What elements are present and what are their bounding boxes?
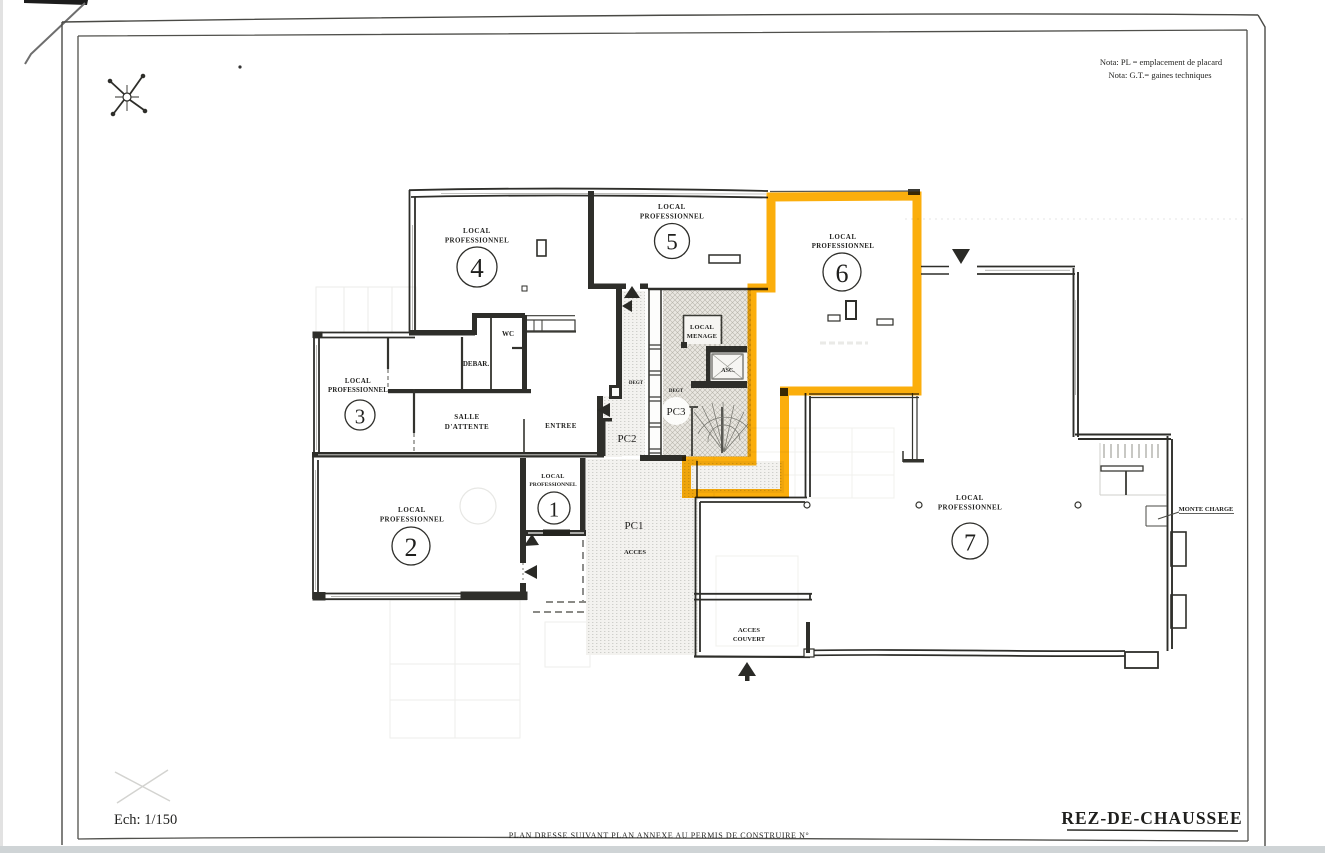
svg-text:MENAGE: MENAGE — [687, 333, 717, 340]
svg-text:PROFESSIONNEL: PROFESSIONNEL — [640, 213, 704, 221]
svg-text:3: 3 — [355, 405, 366, 429]
svg-text:PLAN DRESSE SUIVANT PLAN ANNEX: PLAN DRESSE SUIVANT PLAN ANNEXE AU PERMI… — [509, 831, 810, 840]
svg-text:7: 7 — [964, 531, 976, 557]
svg-text:D'ATTENTE: D'ATTENTE — [445, 423, 489, 431]
svg-text:ENTREE: ENTREE — [545, 422, 577, 430]
svg-text:1: 1 — [549, 498, 560, 522]
svg-text:2: 2 — [405, 533, 418, 562]
svg-text:LOCAL: LOCAL — [690, 324, 715, 331]
svg-text:LOCAL: LOCAL — [658, 203, 686, 211]
svg-text:WC: WC — [502, 330, 514, 338]
svg-text:SALLE: SALLE — [454, 413, 479, 421]
svg-text:DEBAR.: DEBAR. — [463, 360, 490, 368]
svg-text:DEGT: DEGT — [629, 381, 644, 386]
svg-text:LOCAL: LOCAL — [398, 506, 426, 514]
svg-text:PROFESSIONNEL: PROFESSIONNEL — [380, 516, 444, 524]
svg-text:PROFESSIONNEL: PROFESSIONNEL — [328, 387, 388, 394]
svg-text:ACCES: ACCES — [738, 627, 760, 634]
svg-text:REZ-DE-CHAUSSEE: REZ-DE-CHAUSSEE — [1061, 808, 1242, 828]
svg-text:LOCAL: LOCAL — [463, 227, 491, 235]
svg-text:PROFESSIONNEL: PROFESSIONNEL — [529, 482, 577, 488]
svg-text:PROFESSIONNEL: PROFESSIONNEL — [938, 504, 1002, 512]
svg-text:PC3: PC3 — [667, 406, 686, 418]
svg-text:MONTE CHARGE: MONTE CHARGE — [1179, 506, 1234, 513]
svg-text:LOCAL: LOCAL — [956, 494, 984, 502]
svg-text:4: 4 — [470, 253, 484, 283]
svg-text:LOCAL: LOCAL — [829, 234, 856, 241]
svg-text:6: 6 — [836, 259, 849, 288]
svg-text:5: 5 — [666, 230, 678, 255]
svg-text:LOCAL: LOCAL — [541, 473, 565, 480]
svg-text:ASC.: ASC. — [721, 368, 735, 374]
svg-text:Nota: G.T.= gaines techniques: Nota: G.T.= gaines techniques — [1108, 70, 1211, 80]
svg-text:PC2: PC2 — [618, 433, 637, 445]
svg-text:PROFESSIONNEL: PROFESSIONNEL — [812, 243, 875, 250]
svg-text:COUVERT: COUVERT — [733, 636, 766, 643]
svg-text:ACCES: ACCES — [624, 549, 646, 556]
svg-text:Ech: 1/150: Ech: 1/150 — [114, 812, 177, 828]
svg-text:DEGT: DEGT — [669, 389, 684, 394]
svg-text:PC1: PC1 — [625, 520, 644, 532]
svg-text:PROFESSIONNEL: PROFESSIONNEL — [445, 237, 509, 245]
svg-text:LOCAL: LOCAL — [345, 378, 371, 385]
svg-text:Nota: PL = emplacement de plac: Nota: PL = emplacement de placard — [1100, 57, 1223, 67]
